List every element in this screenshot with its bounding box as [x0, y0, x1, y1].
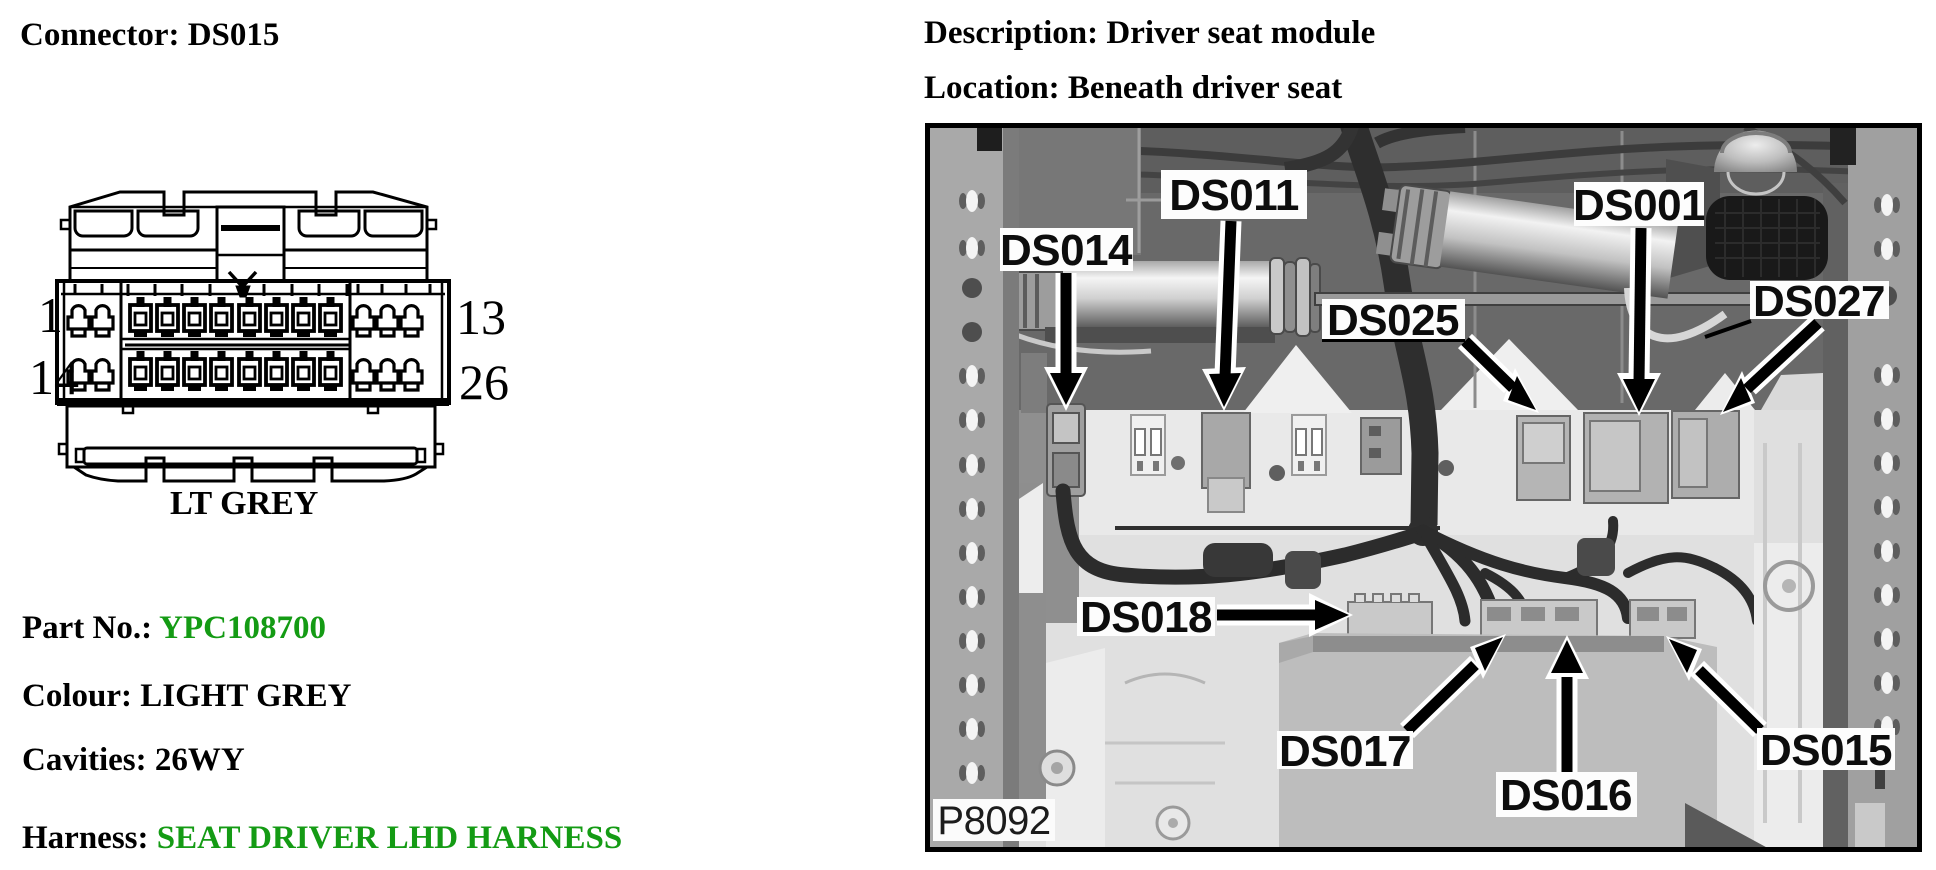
svg-text:DS011: DS011	[1169, 171, 1299, 220]
svg-text:DS014: DS014	[1000, 226, 1133, 275]
svg-text:DS001: DS001	[1573, 181, 1705, 230]
svg-text:DS018: DS018	[1080, 593, 1212, 642]
svg-text:DS015: DS015	[1760, 726, 1892, 775]
svg-text:DS017: DS017	[1279, 727, 1411, 776]
svg-text:DS016: DS016	[1500, 771, 1632, 820]
svg-text:DS027: DS027	[1753, 277, 1885, 326]
svg-text:DS025: DS025	[1327, 296, 1459, 345]
svg-text:P8092: P8092	[937, 799, 1050, 843]
